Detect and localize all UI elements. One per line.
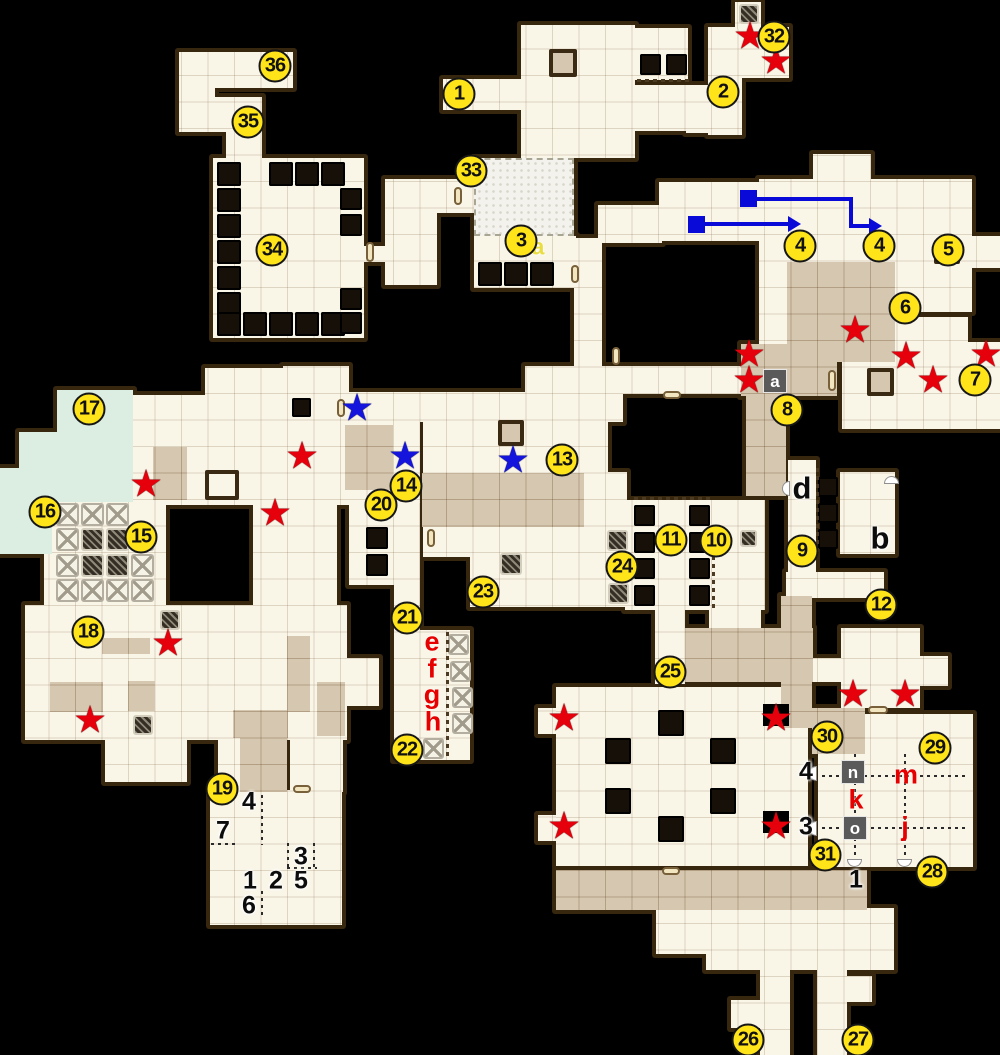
floor-area <box>385 211 437 285</box>
map-marker-31[interactable]: 31 <box>809 839 842 872</box>
explored-tan-area <box>102 638 150 654</box>
red-foe-star-icon[interactable]: ★ <box>129 465 163 503</box>
door-icon[interactable] <box>427 529 435 547</box>
blue-foe-star-icon[interactable]: ★ <box>340 389 374 427</box>
patrol-route-dots <box>261 891 263 919</box>
door-icon[interactable] <box>571 265 579 283</box>
pillar-block <box>321 162 345 186</box>
red-foe-star-icon[interactable]: ★ <box>759 699 793 737</box>
breakable-wall <box>634 497 710 500</box>
pillar-block <box>658 816 684 842</box>
damage-tile <box>81 503 104 526</box>
damage-tile <box>56 579 79 602</box>
floor-area <box>598 205 662 243</box>
red-foe-star-icon[interactable]: ★ <box>151 624 185 662</box>
pillar-block <box>710 738 736 764</box>
red-foe-star-icon[interactable]: ★ <box>888 675 922 713</box>
patrol-arrow-line <box>849 224 871 228</box>
boxed-letter-label[interactable]: o <box>843 816 867 840</box>
pillar-block <box>269 162 293 186</box>
pillar-block <box>504 262 528 286</box>
map-marker-24[interactable]: 24 <box>606 551 639 584</box>
patrol-route-dots <box>287 843 289 869</box>
red-letter-label[interactable]: e <box>424 629 439 656</box>
map-marker-1[interactable]: 1 <box>443 78 476 111</box>
red-letter-label[interactable]: g <box>424 682 441 709</box>
hatch-tile <box>133 715 153 735</box>
breakable-wall <box>446 632 449 758</box>
pillar-block <box>634 585 655 606</box>
map-marker-19[interactable]: 19 <box>206 773 239 806</box>
pillar-block <box>818 477 838 497</box>
red-letter-label[interactable]: f <box>428 656 437 683</box>
floor-area <box>686 102 710 133</box>
damage-tile <box>448 634 469 655</box>
red-foe-star-icon[interactable]: ★ <box>285 437 319 475</box>
pillar-block <box>243 312 267 336</box>
damage-tile <box>56 528 79 551</box>
enclosed-cell <box>549 49 577 77</box>
damage-tile <box>106 579 129 602</box>
pillar-block <box>634 505 655 526</box>
pillar-block <box>340 288 362 310</box>
map-marker-18[interactable]: 18 <box>72 616 105 649</box>
pillar-block <box>666 54 687 75</box>
damage-tile <box>106 503 129 526</box>
black-letter-label[interactable]: 1 <box>243 869 257 894</box>
one-way-door-icon[interactable] <box>884 476 899 484</box>
black-letter-label[interactable]: 7 <box>216 819 230 844</box>
map-marker-36[interactable]: 36 <box>259 50 292 83</box>
patrol-route-dots <box>261 795 263 845</box>
explored-tan-area <box>240 712 287 792</box>
pillar-block <box>689 585 710 606</box>
red-letter-label[interactable]: m <box>894 762 918 789</box>
black-letter-label[interactable]: 4 <box>242 790 256 815</box>
explored-tan-area <box>287 636 310 712</box>
red-foe-star-icon[interactable]: ★ <box>547 807 581 845</box>
map-marker-20[interactable]: 20 <box>365 489 398 522</box>
blue-foe-star-icon[interactable]: ★ <box>496 441 530 479</box>
pillar-block <box>217 240 241 264</box>
door-icon[interactable] <box>868 706 888 714</box>
pillar-block <box>340 214 362 236</box>
map-marker-29[interactable]: 29 <box>919 732 952 765</box>
floor-area <box>210 790 342 925</box>
boxed-letter-label[interactable]: n <box>841 760 865 784</box>
pillar-block <box>605 738 631 764</box>
map-marker-26[interactable]: 26 <box>732 1024 765 1055</box>
damage-tile <box>81 579 104 602</box>
damage-tile <box>423 738 444 759</box>
map-marker-17[interactable]: 17 <box>73 393 106 426</box>
floor-area <box>709 610 761 630</box>
map-marker-16[interactable]: 16 <box>29 496 62 529</box>
red-foe-star-icon[interactable]: ★ <box>838 311 872 349</box>
map-marker-32[interactable]: 32 <box>758 21 791 54</box>
pillar-block <box>689 505 710 526</box>
black-letter-label[interactable]: 4 <box>799 760 813 785</box>
hatch-tile <box>607 530 628 551</box>
breakable-wall <box>816 468 819 553</box>
pillar-block <box>295 312 319 336</box>
red-letter-label[interactable]: j <box>901 814 909 841</box>
pillar-block <box>689 558 710 579</box>
pillar-block <box>217 162 241 186</box>
floor-area <box>760 968 790 1055</box>
pillar-block <box>292 398 311 417</box>
pillar-block <box>295 162 319 186</box>
hatch-tile <box>81 554 104 577</box>
red-letter-label[interactable]: k <box>848 787 863 814</box>
damage-tile <box>131 579 154 602</box>
red-foe-star-icon[interactable]: ★ <box>258 494 292 532</box>
pillar-block <box>217 214 241 238</box>
damage-tile <box>452 713 473 734</box>
explored-tan-area <box>317 682 345 736</box>
black-letter-label[interactable]: 1 <box>849 868 863 893</box>
door-icon[interactable] <box>663 391 681 399</box>
explored-tan-area <box>128 681 155 711</box>
damage-tile <box>56 554 79 577</box>
patrol-foe-square[interactable] <box>688 216 705 233</box>
floor-area <box>521 25 635 158</box>
floor-area <box>846 976 872 1002</box>
explored-tan-area <box>685 628 813 682</box>
door-icon[interactable] <box>662 867 680 875</box>
patrol-arrow-line <box>705 222 790 226</box>
black big-letter-label[interactable]: b <box>871 523 890 554</box>
pillar-block <box>710 788 736 814</box>
pillar-block <box>217 266 241 290</box>
hatch-tile <box>81 528 104 551</box>
pillar-block <box>605 788 631 814</box>
red-foe-star-icon[interactable]: ★ <box>759 807 793 845</box>
map-marker-30[interactable]: 30 <box>811 721 844 754</box>
map-marker-4[interactable]: 4 <box>863 230 896 263</box>
black-letter-label[interactable]: 5 <box>294 869 308 894</box>
map-marker-15[interactable]: 15 <box>125 521 158 554</box>
map-marker-28[interactable]: 28 <box>916 856 949 889</box>
map-marker-12[interactable]: 12 <box>865 589 898 622</box>
floor-area <box>205 368 283 424</box>
map-marker-2[interactable]: 2 <box>707 76 740 109</box>
hatch-tile <box>106 554 129 577</box>
black-letter-label[interactable]: 2 <box>269 869 283 894</box>
door-icon[interactable] <box>828 370 836 391</box>
damage-tile <box>131 554 154 577</box>
map-marker-35[interactable]: 35 <box>232 106 265 139</box>
map-marker-33[interactable]: 33 <box>455 155 488 188</box>
door-icon[interactable] <box>293 785 311 793</box>
black-letter-label[interactable]: 6 <box>242 894 256 919</box>
map-marker-27[interactable]: 27 <box>842 1024 875 1055</box>
floor-area <box>706 908 894 970</box>
door-icon[interactable] <box>366 242 374 262</box>
pillar-block <box>818 529 838 549</box>
map-marker-13[interactable]: 13 <box>546 444 579 477</box>
map-marker-11[interactable]: 11 <box>655 524 688 557</box>
pillar-block <box>217 188 241 212</box>
map-marker-8[interactable]: 8 <box>771 394 804 427</box>
explored-tan-area <box>556 870 867 910</box>
map-marker-4[interactable]: 4 <box>784 230 817 263</box>
floor-area <box>283 392 623 422</box>
mint-area <box>0 468 133 502</box>
red-foe-star-icon[interactable]: ★ <box>732 361 766 399</box>
map-marker-34[interactable]: 34 <box>256 234 289 267</box>
floor-area <box>423 527 629 557</box>
floor-area <box>347 658 379 706</box>
pillar-block <box>269 312 293 336</box>
floor-area <box>525 366 755 394</box>
hatch-tile <box>500 553 522 575</box>
enclosed-cell <box>205 470 239 500</box>
damage-tile <box>452 687 473 708</box>
map-marker-10[interactable]: 10 <box>700 525 733 558</box>
map-marker-21[interactable]: 21 <box>391 602 424 635</box>
map-marker-5[interactable]: 5 <box>932 234 965 267</box>
pillar-block <box>366 554 388 576</box>
explored-tan-area <box>345 425 393 490</box>
hatch-tile <box>608 583 629 604</box>
pillar-block <box>217 312 241 336</box>
door-icon[interactable] <box>612 347 620 365</box>
pillar-block <box>818 503 838 523</box>
floor-area <box>813 154 871 181</box>
damage-tile <box>450 661 471 682</box>
pillar-block <box>366 527 388 549</box>
breakable-wall <box>637 79 689 82</box>
pillar-block <box>340 312 362 334</box>
red-foe-star-icon[interactable]: ★ <box>916 361 950 399</box>
map-marker-3[interactable]: 3 <box>505 225 538 258</box>
red-foe-star-icon[interactable]: ★ <box>547 699 581 737</box>
red-foe-star-icon[interactable]: ★ <box>73 701 107 739</box>
pillar-block <box>640 54 661 75</box>
map-marker-22[interactable]: 22 <box>391 734 424 767</box>
pillar-block <box>340 188 362 210</box>
door-icon[interactable] <box>454 187 462 205</box>
black-letter-label[interactable]: 3 <box>799 815 813 840</box>
hatch-tile <box>740 530 757 547</box>
dungeon-map-canvas: ★★★★★★★★★★★★★★★★★★★★★★db4314731256efghkm… <box>0 0 1000 1055</box>
map-marker-6[interactable]: 6 <box>889 292 922 325</box>
patrol-foe-square[interactable] <box>740 190 757 207</box>
one-way-door-icon[interactable] <box>782 481 790 496</box>
map-marker-9[interactable]: 9 <box>786 535 819 568</box>
pillar-block <box>658 710 684 736</box>
patrol-route-dots <box>313 843 315 869</box>
black big-letter-label[interactable]: d <box>793 473 812 504</box>
map-marker-23[interactable]: 23 <box>467 576 500 609</box>
red-letter-label[interactable]: h <box>425 709 442 736</box>
boxed-letter-label[interactable]: a <box>763 369 787 393</box>
map-marker-25[interactable]: 25 <box>654 656 687 689</box>
red-foe-star-icon[interactable]: ★ <box>836 675 870 713</box>
floor-area <box>918 656 948 686</box>
pillar-block <box>530 262 554 286</box>
map-marker-7[interactable]: 7 <box>959 364 992 397</box>
floor-area <box>105 738 187 782</box>
pillar-block <box>634 532 655 553</box>
pillar-block <box>478 262 502 286</box>
floor-area <box>582 472 627 528</box>
patrol-arrow-line <box>757 197 852 201</box>
